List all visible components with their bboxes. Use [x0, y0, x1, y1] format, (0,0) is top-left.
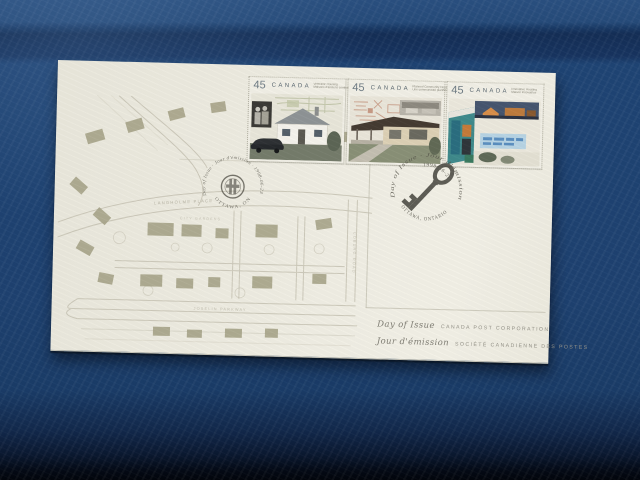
day-of-issue-imprint: Day of IssueCANADA POST CORPORATION Jour…: [377, 315, 590, 355]
map-street-label: LANGHOLME PLACE: [154, 198, 213, 206]
stamp-denomination: 45: [253, 80, 266, 90]
key-icon: [401, 159, 455, 215]
stamp-denomination: 45: [451, 85, 464, 95]
stamp-caption-fr: Maison innovatrice: [511, 91, 536, 95]
stamp-art-modern-building: [447, 98, 541, 166]
stamp-art-white-house: [249, 93, 343, 161]
stamp-country: CANADA: [371, 85, 411, 92]
stamp-caption-fr: Une communauté planifiée: [412, 88, 448, 92]
day-of-issue-english: Day of Issue: [377, 319, 435, 331]
photo-blue-fabric-background: LANGHOLME PLACE CITY GARDENS COBURG ROAD…: [0, 0, 640, 480]
stamp-veterans-housing: 45 CANADA Veterans' Housing Maisons d'an…: [247, 77, 345, 163]
day-of-issue-french: Jour d'émission: [377, 336, 450, 348]
svg-text:OTTAWA, ONTARIO: OTTAWA, ONTARIO: [399, 204, 449, 223]
map-street-label: JOSELIN PARKWAY: [193, 307, 246, 312]
stamp-planned-community-housing: 45 CANADA Planned Community Housing Une …: [346, 80, 444, 166]
stamp-innovative-housing: 45 CANADA Innovative Housing Maison inno…: [445, 82, 543, 168]
first-day-cover-envelope: LANGHOLME PLACE CITY GARDENS COBURG ROAD…: [50, 60, 555, 364]
stamp-denomination: 45: [352, 83, 365, 93]
stamp-country: CANADA: [470, 88, 510, 95]
postmark-right-bottom-text: OTTAWA, ONTARIO: [399, 204, 449, 223]
societe-canadienne-text: SOCIÉTÉ CANADIENNE DES POSTES: [455, 341, 589, 350]
canada-post-corporation-text: CANADA POST CORPORATION: [441, 324, 550, 333]
map-street-label: CITY GARDENS: [180, 216, 221, 221]
cachet-horizontal-rule: [366, 307, 546, 313]
stamp-art-ranch-house: [348, 96, 442, 164]
stamp-country: CANADA: [272, 83, 312, 90]
stamp-strip: 45 CANADA Veterans' Housing Maisons d'an…: [247, 77, 543, 169]
map-street-label: COBURG ROAD: [352, 232, 357, 274]
